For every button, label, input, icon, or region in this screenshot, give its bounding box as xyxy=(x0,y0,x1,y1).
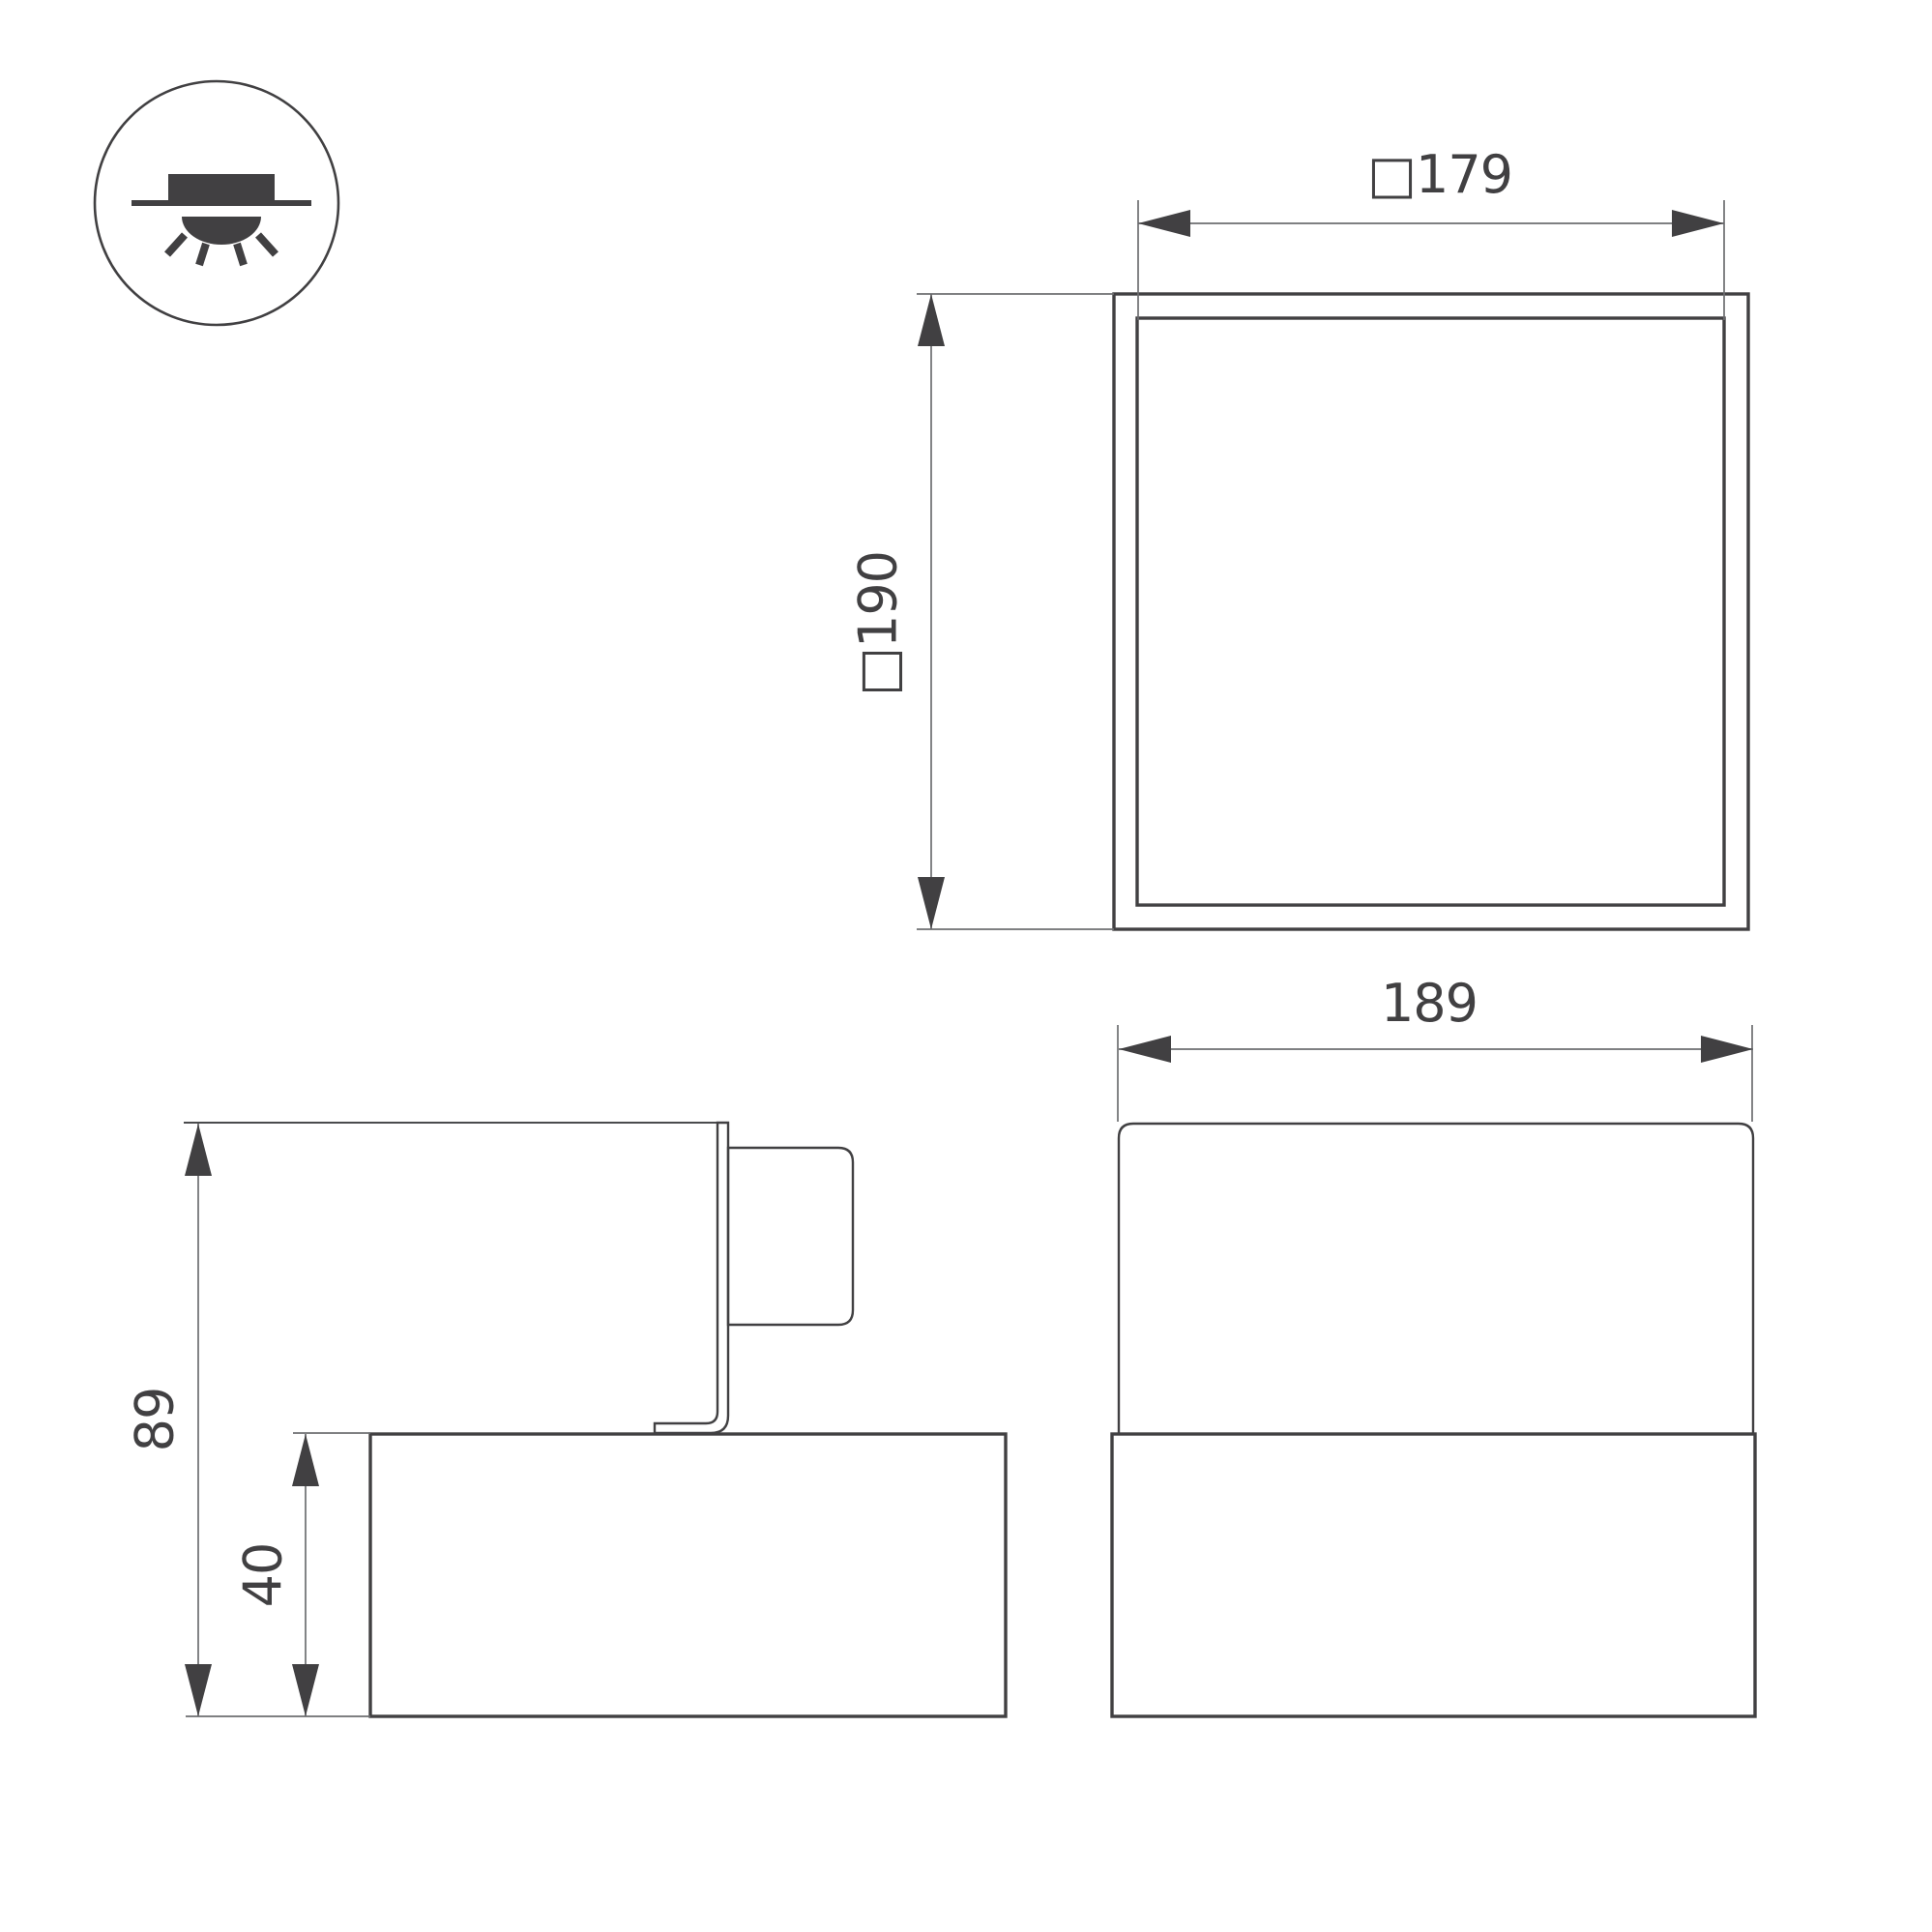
front-head-body xyxy=(1119,1124,1753,1434)
arrowhead-down xyxy=(292,1664,319,1716)
plan-inner-square xyxy=(1137,318,1724,905)
dimension-drawing-svg: □179 □190 xyxy=(0,0,1932,1932)
mounting-type-icon xyxy=(95,81,338,325)
dim-189-label: 189 xyxy=(1381,973,1478,1034)
front-view: 189 xyxy=(1112,973,1755,1716)
dim-189: 189 xyxy=(1118,973,1753,1122)
dim-190-label: □190 xyxy=(848,551,909,696)
arrowhead-right xyxy=(1701,1036,1753,1063)
front-base-body xyxy=(1112,1434,1755,1716)
dim-190: □190 xyxy=(848,294,1115,929)
plan-outer-square xyxy=(1114,294,1748,929)
arrowhead-left xyxy=(1119,1036,1171,1063)
side-base-body xyxy=(370,1434,1006,1716)
dim-179-label: □179 xyxy=(1367,144,1512,205)
driver-box xyxy=(728,1148,853,1325)
dim-89: 89 xyxy=(125,1124,213,1716)
side-view: 89 40 xyxy=(125,1123,1007,1716)
dim-40: 40 xyxy=(233,1434,320,1716)
icon-ceiling-line xyxy=(132,200,311,206)
arrowhead-right xyxy=(1672,210,1724,237)
arrowhead-up xyxy=(292,1434,319,1486)
arrowhead-up xyxy=(185,1124,212,1176)
dim-89-label: 89 xyxy=(125,1388,186,1452)
arrowhead-down xyxy=(918,877,945,929)
arrowhead-up xyxy=(918,294,945,346)
plan-view: □179 □190 xyxy=(848,144,1749,929)
mounting-bracket xyxy=(655,1123,728,1433)
dim-40-label: 40 xyxy=(233,1543,294,1608)
icon-lamp-dome xyxy=(182,217,261,245)
technical-drawing-page: □179 □190 xyxy=(0,0,1932,1932)
arrowhead-left xyxy=(1138,210,1190,237)
arrowhead-down xyxy=(185,1664,212,1716)
